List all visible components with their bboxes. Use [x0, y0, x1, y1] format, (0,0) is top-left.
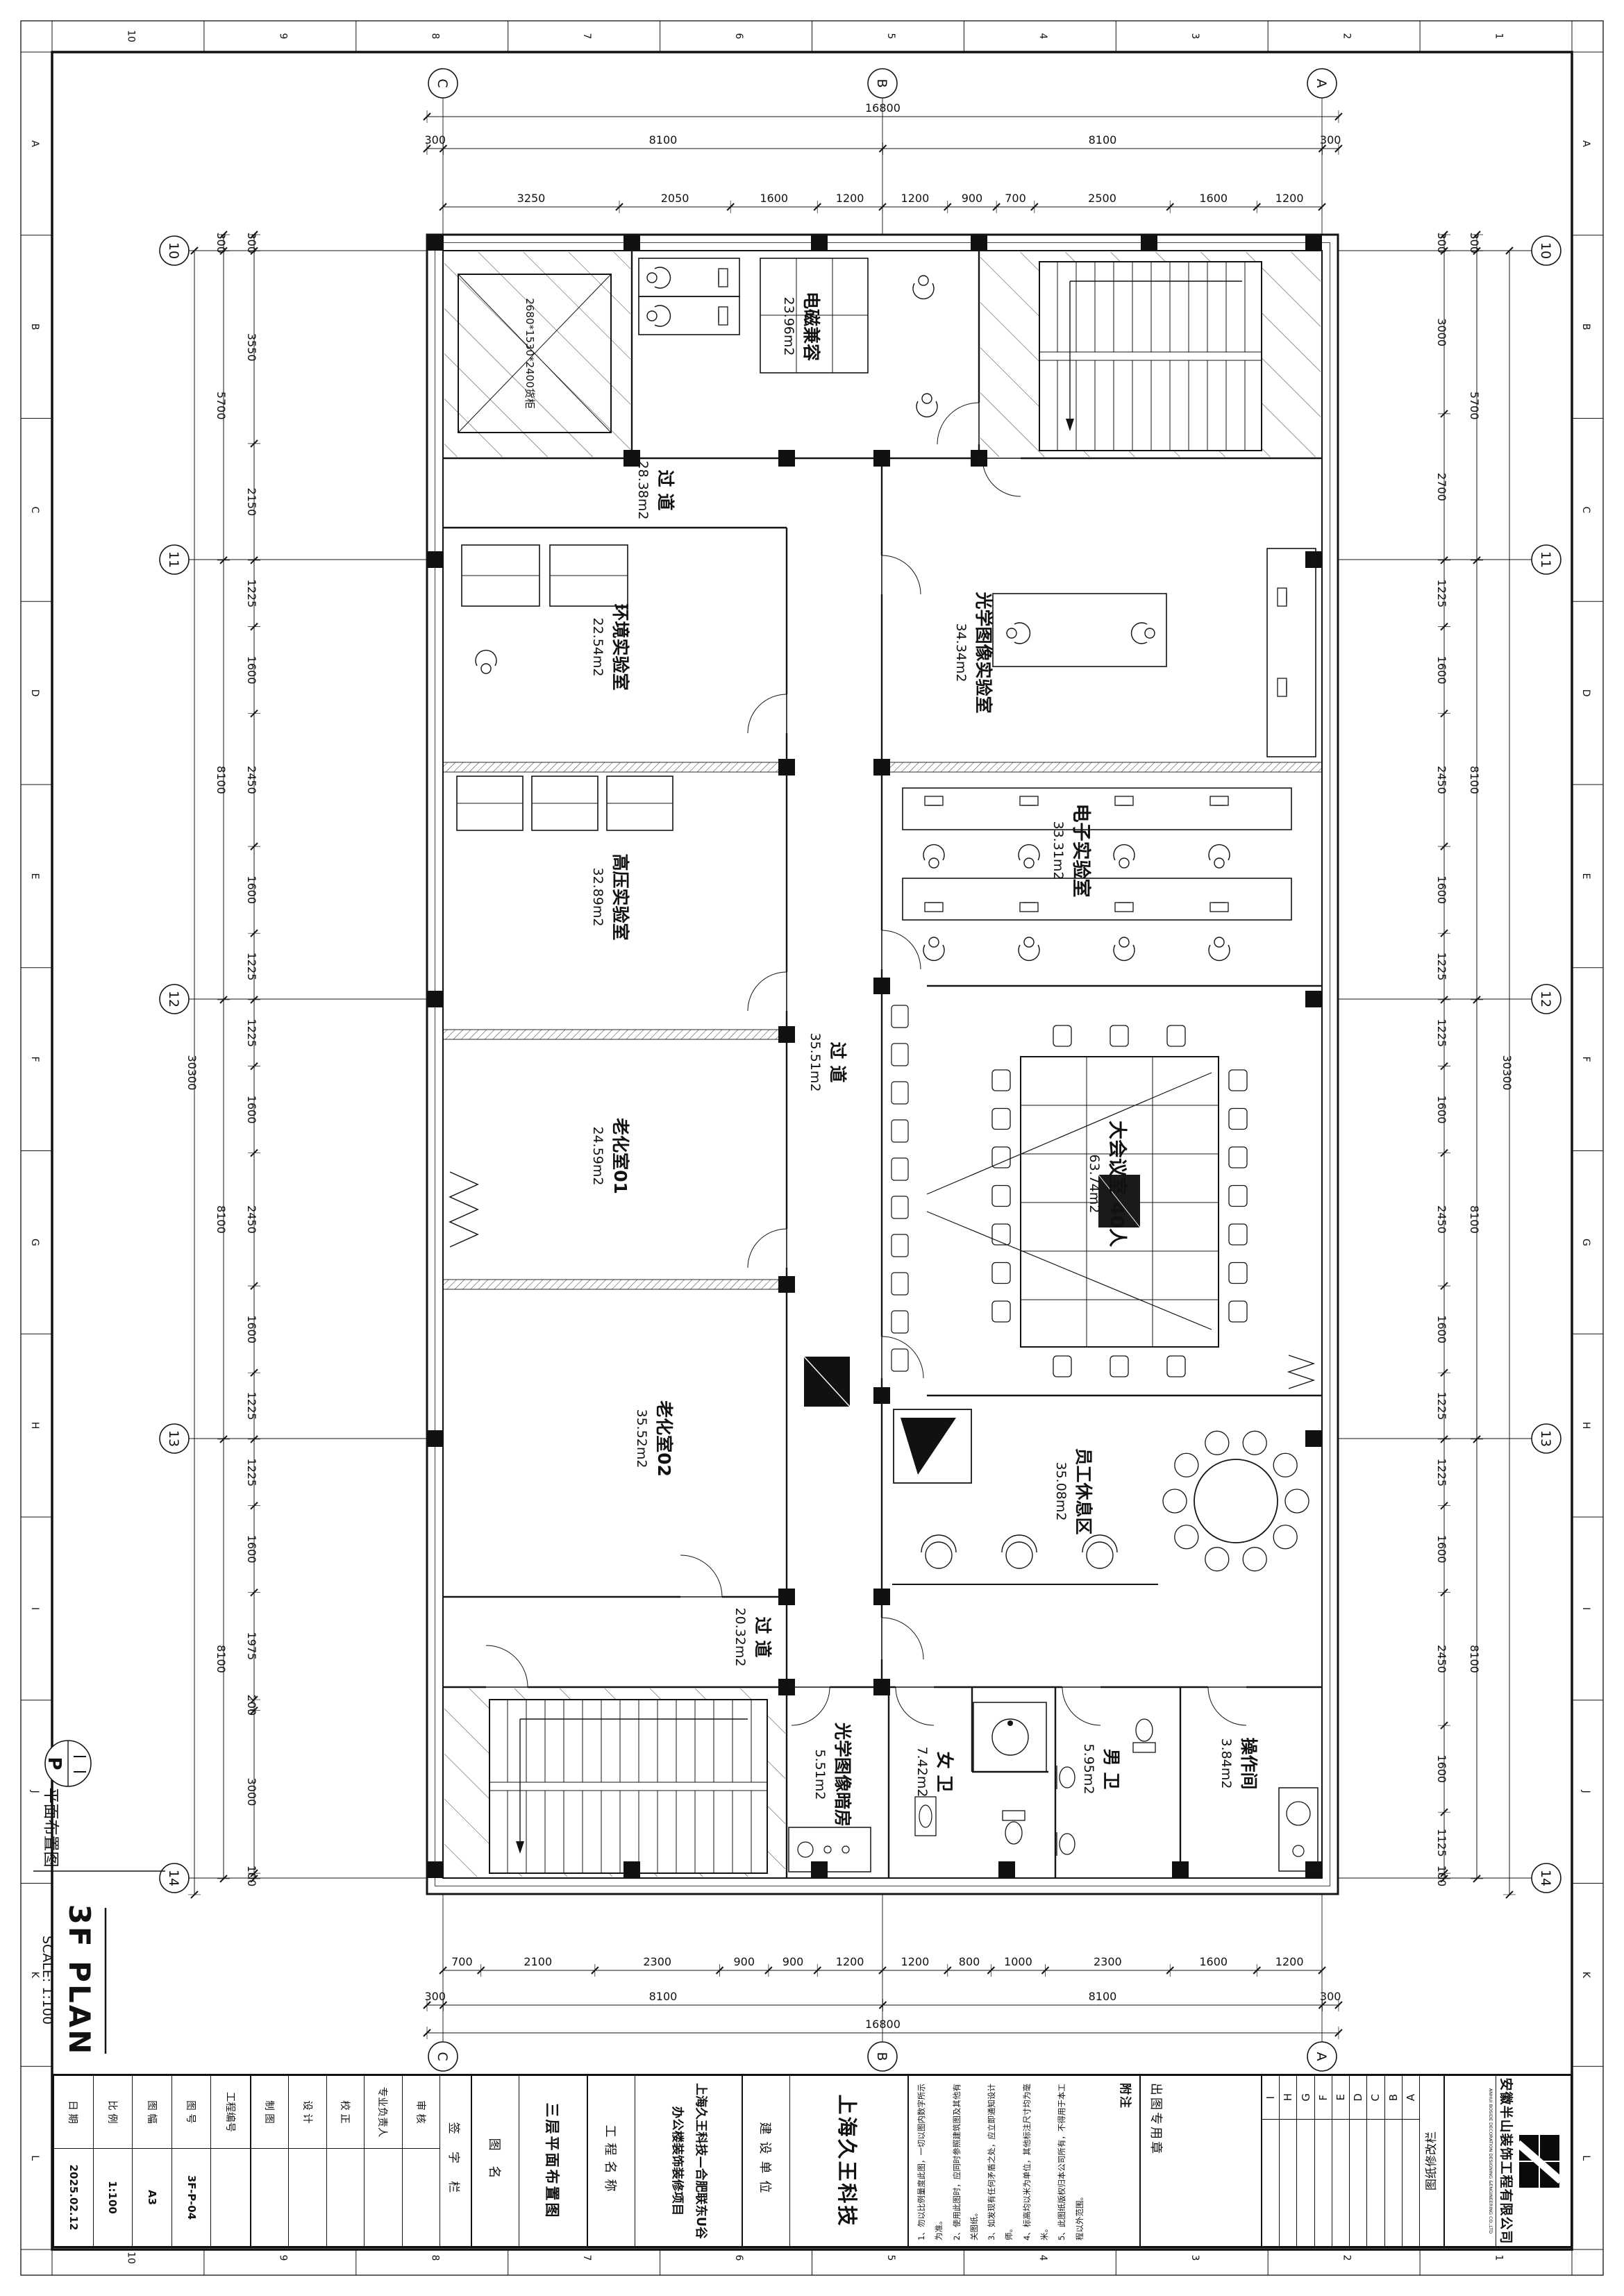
- person-symbol: [647, 267, 670, 288]
- title-block: 安徽半山装饰工程有限公司 ANHUI BOSIDE DECORATION DES…: [52, 2074, 1573, 2248]
- revision-blank-cell: [1332, 2120, 1349, 2246]
- column-marker: [778, 450, 795, 467]
- signature-role-label: 专业负责人: [365, 2076, 401, 2149]
- column-marker: [427, 1430, 444, 1447]
- owner-section: 上海久王科技 建设单位: [742, 2076, 907, 2246]
- monitor-symbol: [925, 796, 943, 805]
- numbering-value: 1:100: [94, 2149, 133, 2246]
- zone-letter: B: [29, 324, 40, 330]
- revision-row: F: [1314, 2076, 1332, 2246]
- grid-bubble-label: B: [874, 78, 889, 87]
- revision-row: G: [1296, 2076, 1314, 2246]
- monitor-symbol: [1115, 796, 1133, 805]
- column-marker: [778, 1276, 795, 1293]
- zone-number: 6: [733, 2255, 744, 2261]
- numbering-section: 工程编号图 号3F-P-04图 幅A3比 例1:100日 期2025.02.12: [54, 2076, 250, 2246]
- revision-blank-cell: [1280, 2120, 1296, 2246]
- column-marker: [1172, 1861, 1189, 1878]
- grid-bubble-label: 13: [1538, 1430, 1553, 1447]
- room-area: 3.84m2: [1219, 1738, 1234, 1789]
- dimension-text: 1200: [836, 192, 864, 205]
- numbering-label: 图 幅: [133, 2076, 171, 2149]
- chair-symbol: [1229, 1263, 1247, 1284]
- sheet-scale: SCALE: 1:100: [40, 1936, 55, 2025]
- person-symbol: [1019, 845, 1039, 868]
- dimension-text: 1975: [245, 1632, 258, 1661]
- room-name: 电子实验室: [1070, 804, 1092, 898]
- dimension-text: 1200: [1275, 192, 1304, 205]
- dimension-text: 1600: [245, 1535, 258, 1564]
- signature-rows: 审 核专业负责人校 正设 计制 图: [251, 2076, 440, 2246]
- chair-symbol: [992, 1263, 1010, 1284]
- dimension-text: 2300: [1094, 1955, 1122, 1968]
- dimension-text: 1225: [1435, 1392, 1448, 1421]
- room-area: 24.59m2: [590, 1127, 605, 1186]
- revision-blank-cell: [1297, 2120, 1314, 2246]
- person-symbol: [1019, 937, 1039, 960]
- notes-title: 附注: [1118, 2083, 1135, 2109]
- signature-blank-cell: [365, 2149, 401, 2246]
- dimension-text: 1200: [836, 1955, 864, 1968]
- room-name: 光学图像暗房: [832, 1722, 853, 1827]
- column-marker: [873, 450, 890, 467]
- revision-row: B: [1384, 2076, 1402, 2246]
- seal-section: 出图专用章: [1139, 2076, 1261, 2246]
- dimension-text: 1600: [245, 875, 258, 904]
- revision-row: H: [1279, 2076, 1296, 2246]
- zone-letter: D: [1580, 689, 1591, 697]
- grid-bubble-label: 11: [1538, 551, 1553, 568]
- room-name: 光学图像实验室: [973, 591, 994, 713]
- zone-number: 4: [1037, 2255, 1048, 2261]
- column-marker: [971, 234, 987, 251]
- zone-letter: G: [29, 1239, 40, 1246]
- zone-letter: C: [1580, 506, 1591, 513]
- dimension-text: 300: [1320, 133, 1341, 146]
- chair-symbol: [1167, 1025, 1185, 1046]
- chair-symbol: [992, 1301, 1010, 1322]
- dimension-text: 300: [215, 232, 228, 253]
- dimension-text: 2150: [245, 488, 258, 517]
- dimension-text: 3000: [245, 1778, 258, 1807]
- person-symbol: [647, 305, 670, 326]
- chair-symbol: [992, 1224, 1010, 1245]
- room-area: 5.51m2: [812, 1750, 828, 1800]
- dimension-text: 16800: [865, 101, 901, 115]
- dimension-text: 1000: [1004, 1955, 1032, 1968]
- zone-letter: B: [1580, 324, 1591, 330]
- dimension-text: 1600: [760, 192, 788, 205]
- dimension-text: 700: [1005, 192, 1026, 205]
- seal-label: 出图专用章: [1148, 2083, 1166, 2156]
- equipment-label: 2680*1530*2400货柜: [524, 298, 536, 409]
- grid-bubble-label: 12: [1538, 991, 1553, 1007]
- zone-number: 1: [1493, 33, 1505, 40]
- zone-number: 8: [429, 2255, 440, 2261]
- note-line: 5、此图纸版权归本公司所有，不得用于本工程以外范围。: [1053, 2081, 1089, 2240]
- grid-bubble-label: 13: [166, 1430, 181, 1447]
- dimension-text: 2700: [1435, 473, 1448, 501]
- dimension-text: 2450: [245, 1205, 258, 1234]
- signature-role-label: 制 图: [251, 2076, 288, 2149]
- column-marker: [427, 1861, 444, 1878]
- room-name: 女 卫: [935, 1752, 955, 1793]
- zone-number: 9: [277, 2255, 288, 2261]
- room-area: 5.95m2: [1081, 1744, 1096, 1795]
- person-symbol: [913, 276, 934, 299]
- column-marker: [1305, 991, 1322, 1007]
- grid-bubble-label: A: [1314, 2052, 1329, 2061]
- project-name-line1: 上海久王科技—合肥联东U谷: [689, 2083, 712, 2238]
- column-marker: [1305, 234, 1322, 251]
- revision-title: 图纸修改栏: [1419, 2076, 1443, 2246]
- grid-bubble-label: 10: [166, 242, 181, 259]
- dimension-text: 1600: [1199, 1955, 1228, 1968]
- revision-letter: E: [1332, 2076, 1349, 2120]
- dimension-text: 8100: [215, 1205, 228, 1234]
- dimension-text: 1600: [1435, 1315, 1448, 1343]
- numbering-rows: 工程编号图 号3F-P-04图 幅A3比 例1:100日 期2025.02.12: [54, 2076, 250, 2246]
- column-marker: [998, 1861, 1015, 1878]
- column-marker: [778, 1026, 795, 1043]
- grid-bubble-label: 14: [1538, 1870, 1553, 1886]
- monitor-symbol: [1020, 796, 1038, 805]
- owner-name: 上海久王科技: [789, 2076, 907, 2246]
- drawing-name-label: 图 名: [472, 2076, 519, 2246]
- zone-number: 4: [1037, 33, 1048, 40]
- dimension-text: 100: [245, 1866, 258, 1887]
- grid-bubble-label: B: [874, 2052, 889, 2061]
- revision-letter: B: [1385, 2076, 1402, 2120]
- dimension-text: 2100: [524, 1955, 552, 1968]
- dimension-text: 1600: [1435, 1754, 1448, 1783]
- signature-row: 制 图: [251, 2076, 288, 2246]
- dimension-text: 3000: [1435, 318, 1448, 346]
- zone-letter: D: [29, 689, 40, 697]
- dimension-text: 8100: [1089, 133, 1117, 146]
- monitor-symbol: [1210, 796, 1228, 805]
- dimension-text: 8100: [649, 133, 678, 146]
- signature-role-label: 设 计: [289, 2076, 326, 2149]
- chair-symbol: [1229, 1070, 1247, 1091]
- zone-letter: E: [29, 873, 40, 879]
- room-area: 28.38m2: [635, 461, 651, 520]
- signature-blank-cell: [289, 2149, 326, 2246]
- person-symbol: [1209, 937, 1230, 960]
- revision-letter: D: [1350, 2076, 1366, 2120]
- zone-number: 9: [277, 33, 288, 40]
- dimension-text: 8100: [1468, 766, 1481, 794]
- monitor-symbol: [719, 307, 728, 325]
- numbering-label: 日 期: [54, 2076, 93, 2149]
- dimension-text: 8100: [1468, 1205, 1481, 1234]
- zone-letter: A: [29, 140, 40, 147]
- dimension-text: 1600: [1435, 1096, 1448, 1124]
- note-line: 4、标高均以米为单位，其他标注尺寸均为毫米。: [1019, 2081, 1054, 2240]
- zone-number: 8: [429, 33, 440, 40]
- revision-blank-cell: [1262, 2120, 1279, 2246]
- dimension-text: 900: [733, 1955, 755, 1968]
- chair-symbol: [1229, 1147, 1247, 1168]
- dimension-text: 1225: [1435, 1019, 1448, 1047]
- chair-symbol: [1053, 1025, 1071, 1046]
- column-marker: [1305, 551, 1322, 568]
- dimension-text: 300: [1435, 232, 1448, 253]
- company-name-cn: 安徽半山装饰工程有限公司: [1496, 2076, 1516, 2245]
- dimension-text: 1600: [245, 1096, 258, 1124]
- room-name: 环境实验室: [610, 603, 630, 690]
- revision-rows: ABCDEFGHI: [1262, 2076, 1419, 2246]
- zone-number: 2: [1341, 33, 1353, 40]
- zone-letter: F: [1580, 1057, 1591, 1062]
- person-symbol: [1114, 845, 1135, 868]
- signature-row: 审 核: [402, 2076, 440, 2246]
- monitor-symbol: [1115, 903, 1133, 912]
- chair-symbol: [1110, 1025, 1128, 1046]
- dimension-text: 1225: [1435, 1458, 1448, 1486]
- dimension-text: 5700: [215, 392, 228, 420]
- project-name-line2: 办公楼装饰装修项目: [665, 2106, 688, 2216]
- revision-blank-cell: [1385, 2120, 1402, 2246]
- signature-role-label: 审 核: [403, 2076, 440, 2149]
- room-name: 大会议室 40人: [1106, 1121, 1128, 1247]
- dimension-text: 8100: [1089, 1990, 1117, 2003]
- dimension-text: 30300: [1500, 1055, 1514, 1091]
- numbering-value: 3F-P-04: [172, 2149, 211, 2246]
- room-area: 35.08m2: [1053, 1462, 1069, 1521]
- zone-letter: J: [29, 1790, 40, 1793]
- revision-row: E: [1332, 2076, 1349, 2246]
- dimension-text: 300: [245, 232, 258, 253]
- column-marker: [427, 234, 444, 251]
- toilet-symbol: [1003, 1811, 1025, 1844]
- signature-role-label: 校 正: [327, 2076, 364, 2149]
- room-name: 电磁兼容: [801, 292, 821, 361]
- person-symbol: [1114, 937, 1135, 960]
- zone-letter: L: [29, 2155, 40, 2161]
- room-area: 22.54m2: [590, 618, 605, 677]
- numbering-value: [211, 2149, 250, 2246]
- monitor-symbol: [1278, 678, 1287, 696]
- revision-letter: C: [1367, 2076, 1384, 2120]
- room-area: 20.32m2: [733, 1608, 748, 1667]
- grid-bubble-label: 14: [166, 1870, 181, 1886]
- person-symbol: [1132, 623, 1155, 644]
- drawing-sheet: 1010998877665544332211AABBCCDDEEFFGGHHII…: [0, 0, 1624, 2296]
- dimension-text: 8100: [215, 1645, 228, 1673]
- note-line: 2、使用此图时，应同时参照建筑图及其他有关图纸。: [948, 2081, 984, 2240]
- project-label: 工程名称: [588, 2076, 635, 2246]
- note-line: 3、如发现有任何矛盾之处，应立即通知设计师。: [983, 2081, 1019, 2240]
- dimension-text: 5700: [1468, 392, 1481, 420]
- project-name: 上海久王科技—合肥联东U谷 办公楼装饰装修项目: [635, 2076, 742, 2246]
- company-name-en: ANHUI BOSIDE DECORATION DESIGNING &ENGIN…: [1488, 2083, 1493, 2239]
- column-marker: [811, 1861, 828, 1878]
- monitor-symbol: [719, 269, 728, 287]
- zone-letter: F: [29, 1057, 40, 1062]
- revision-blank-cell: [1315, 2120, 1332, 2246]
- notes-list: 1、勿以比例量度此图，一切以图内数字所示为准。2、使用此图时，应同时参照建筑图及…: [913, 2081, 1116, 2240]
- zone-number: 5: [885, 2255, 896, 2261]
- round-table: [1194, 1459, 1278, 1543]
- dimension-text: 2450: [1435, 1205, 1448, 1234]
- zone-number: 7: [581, 2255, 592, 2261]
- note-line: 1、勿以比例量度此图，一切以图内数字所示为准。: [913, 2081, 948, 2240]
- dimension-text: 1600: [1435, 875, 1448, 904]
- plan-symbol-letter: P: [44, 1757, 65, 1770]
- signature-row: 设 计: [288, 2076, 326, 2246]
- dimension-text: 1600: [1199, 192, 1228, 205]
- dimension-text: 8100: [649, 1990, 678, 2003]
- dimension-text: 300: [424, 133, 446, 146]
- dimension-text: 1225: [245, 1019, 258, 1047]
- column-marker: [873, 759, 890, 776]
- signature-section: 签 字 栏 审 核专业负责人校 正设 计制 图: [250, 2076, 471, 2246]
- chair-symbol: [992, 1147, 1010, 1168]
- drawing-name: 三层平面布置图: [519, 2076, 587, 2246]
- revision-row: A: [1402, 2076, 1419, 2246]
- revision-row: D: [1349, 2076, 1366, 2246]
- zone-letter: E: [1580, 873, 1591, 879]
- room-name: 高压实验室: [610, 853, 630, 940]
- numbering-value: 2025.02.12: [54, 2149, 93, 2246]
- column-marker: [811, 234, 828, 251]
- room-name: 操作间: [1239, 1737, 1259, 1789]
- person-symbol: [923, 845, 944, 868]
- room-name: 过 道: [655, 470, 676, 511]
- dimension-text: 1600: [1435, 656, 1448, 685]
- dimension-text: 1200: [1275, 1955, 1304, 1968]
- zone-letter: G: [1580, 1239, 1591, 1246]
- signature-row: 专业负责人: [364, 2076, 401, 2246]
- column-marker: [623, 234, 640, 251]
- chair-symbol: [1167, 1356, 1185, 1377]
- room-area: 34.34m2: [953, 623, 969, 682]
- numbering-row: 图 号3F-P-04: [171, 2076, 211, 2246]
- chair-symbol: [992, 1109, 1010, 1130]
- dimension-text: 800: [959, 1955, 980, 1968]
- grid-bubble-label: 12: [166, 991, 181, 1007]
- dimension-text: 900: [962, 192, 983, 205]
- zone-letter: C: [29, 506, 40, 513]
- dimension-text: 1125: [1435, 1829, 1448, 1857]
- revision-letter: F: [1315, 2076, 1332, 2120]
- dimension-text: 2300: [643, 1955, 671, 1968]
- revision-blank-cell: [1403, 2120, 1419, 2246]
- zone-letter: H: [29, 1422, 40, 1430]
- revision-section: 图纸修改栏 ABCDEFGHI: [1261, 2076, 1443, 2246]
- zone-number: 6: [733, 33, 744, 40]
- chair-symbol: [992, 1186, 1010, 1207]
- dimension-text: 1225: [245, 1458, 258, 1486]
- monitor-symbol: [1278, 588, 1287, 606]
- chair-symbol: [1229, 1186, 1247, 1207]
- column-marker: [427, 991, 444, 1007]
- dimension-text: 30300: [185, 1055, 199, 1091]
- notes-section: 附注 1、勿以比例量度此图，一切以图内数字所示为准。2、使用此图时，应同时参照建…: [907, 2076, 1139, 2246]
- column-marker: [778, 759, 795, 776]
- dimension-text: 2450: [245, 766, 258, 794]
- room-name: 过 道: [753, 1617, 773, 1658]
- dimension-text: 1225: [1435, 953, 1448, 981]
- company-section: 安徽半山装饰工程有限公司 ANHUI BOSIDE DECORATION DES…: [1443, 2076, 1571, 2246]
- column-marker: [873, 978, 890, 994]
- grid-bubble-label: C: [435, 2052, 450, 2061]
- column-marker: [873, 1387, 890, 1404]
- dimension-text: 1600: [245, 1315, 258, 1343]
- dimension-text: 3250: [517, 192, 546, 205]
- chair-symbol: [1110, 1356, 1128, 1377]
- dimension-text: 2050: [661, 192, 689, 205]
- dimension-text: 100: [1435, 1866, 1448, 1887]
- zone-number: 3: [1189, 2255, 1200, 2261]
- chair-symbol: [1229, 1301, 1247, 1322]
- revision-letter: I: [1262, 2076, 1279, 2120]
- chair-symbol: [1229, 1224, 1247, 1245]
- zone-number: 5: [885, 33, 896, 40]
- numbering-value: A3: [133, 2149, 171, 2246]
- column-marker: [873, 1589, 890, 1605]
- dimension-text: 2500: [1088, 192, 1116, 205]
- room-name: 男 卫: [1101, 1749, 1121, 1790]
- dimension-text: 1200: [901, 1955, 930, 1968]
- monitor-symbol: [925, 903, 943, 912]
- zone-number: 10: [125, 2252, 136, 2264]
- drawing-name-section: 三层平面布置图 图 名: [471, 2076, 587, 2246]
- plan-legend-label: 平面布置图: [42, 1788, 60, 1868]
- room-name: 老化室01: [610, 1118, 630, 1194]
- numbering-row: 日 期2025.02.12: [54, 2076, 93, 2246]
- toilet-symbol: [1133, 1719, 1155, 1752]
- revision-blank-cell: [1367, 2120, 1384, 2246]
- dimension-text: 2450: [1435, 766, 1448, 794]
- numbering-row: 比 例1:100: [93, 2076, 133, 2246]
- revision-row: C: [1366, 2076, 1384, 2246]
- numbering-row: 图 幅A3: [132, 2076, 171, 2246]
- grid-bubble-label: 11: [166, 551, 181, 568]
- company-logo-icon: [1518, 2134, 1561, 2189]
- chair-symbol: [1229, 1109, 1247, 1130]
- dimension-text: 300: [1468, 232, 1481, 253]
- project-section: 上海久王科技—合肥联东U谷 办公楼装饰装修项目 工程名称: [587, 2076, 742, 2246]
- dimension-text: 200: [245, 1695, 258, 1716]
- signature-row: 校 正: [326, 2076, 364, 2246]
- room-area: 7.42m2: [914, 1747, 930, 1798]
- room-area: 33.31m2: [1050, 821, 1066, 880]
- numbering-label: 比 例: [94, 2076, 133, 2149]
- zone-letter: L: [1580, 2155, 1591, 2161]
- numbering-row: 工程编号: [210, 2076, 250, 2246]
- zone-letter: H: [1580, 1422, 1591, 1430]
- signature-blank-cell: [251, 2149, 288, 2246]
- zone-letter: K: [1580, 1972, 1591, 1979]
- room-area: 63.74m2: [1087, 1155, 1102, 1214]
- dimension-text: 700: [451, 1955, 473, 1968]
- dimension-text: 300: [1320, 1990, 1341, 2003]
- column-marker: [778, 1589, 795, 1605]
- dimension-text: 1600: [1435, 1535, 1448, 1564]
- room-name: 员工休息区: [1073, 1448, 1094, 1534]
- owner-label: 建设单位: [743, 2076, 789, 2246]
- dimension-text: 2450: [1435, 1645, 1448, 1673]
- dimension-text: 16800: [865, 2018, 901, 2031]
- grid-bubble-label: A: [1314, 79, 1329, 88]
- column-marker: [1305, 1861, 1322, 1878]
- zone-number: 3: [1189, 33, 1200, 40]
- room-name: 老化室02: [654, 1400, 674, 1477]
- person-symbol: [1007, 623, 1030, 644]
- zone-letter: J: [1580, 1790, 1591, 1793]
